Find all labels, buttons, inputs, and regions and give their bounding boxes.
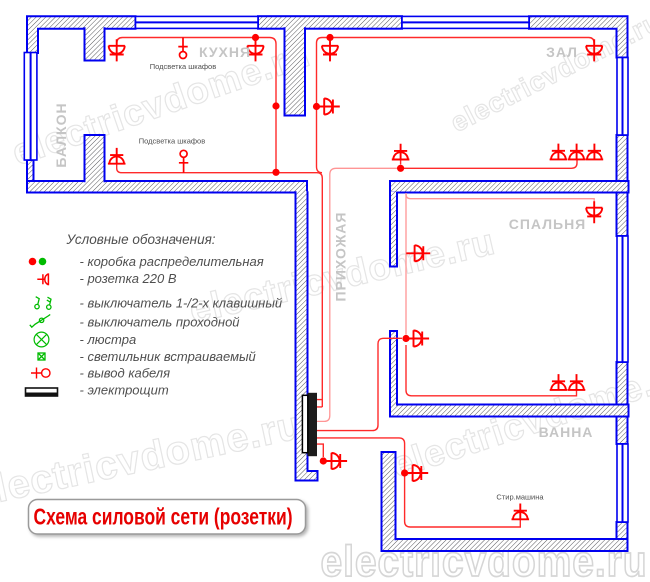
svg-text:ВАННА: ВАННА <box>539 424 594 440</box>
svg-text:Схема силовой сети (розетки): Схема силовой сети (розетки) <box>34 504 293 530</box>
svg-text:Подсветка шкафов: Подсветка шкафов <box>150 62 216 71</box>
svg-text:- выключатель 1-/2-х клавишный: - выключатель 1-/2-х клавишный <box>80 296 283 311</box>
svg-text:- электрощит: - электрощит <box>80 383 169 398</box>
svg-text:Подсветка шкафов: Подсветка шкафов <box>139 137 205 146</box>
svg-text:ПРИХОЖАЯ: ПРИХОЖАЯ <box>333 212 349 302</box>
svg-text:- выключатель проходной: - выключатель проходной <box>80 315 240 330</box>
svg-text:- люстра: - люстра <box>80 332 137 347</box>
svg-text:КУХНЯ: КУХНЯ <box>199 44 251 60</box>
svg-text:Стир.машина: Стир.машина <box>496 493 544 502</box>
svg-text:- розетка 220 В: - розетка 220 В <box>80 271 177 286</box>
svg-text:- светильник встраиваемый: - светильник встраиваемый <box>80 349 256 364</box>
svg-text:Условные обозначения:: Условные обозначения: <box>66 232 216 247</box>
svg-text:СПАЛЬНЯ: СПАЛЬНЯ <box>509 216 587 232</box>
svg-text:ЗАЛ: ЗАЛ <box>546 44 578 60</box>
svg-text:БАЛКОН: БАЛКОН <box>53 102 69 167</box>
svg-text:- коробка распределительная: - коробка распределительная <box>80 254 264 269</box>
svg-text:- вывод кабеля: - вывод кабеля <box>80 366 171 381</box>
